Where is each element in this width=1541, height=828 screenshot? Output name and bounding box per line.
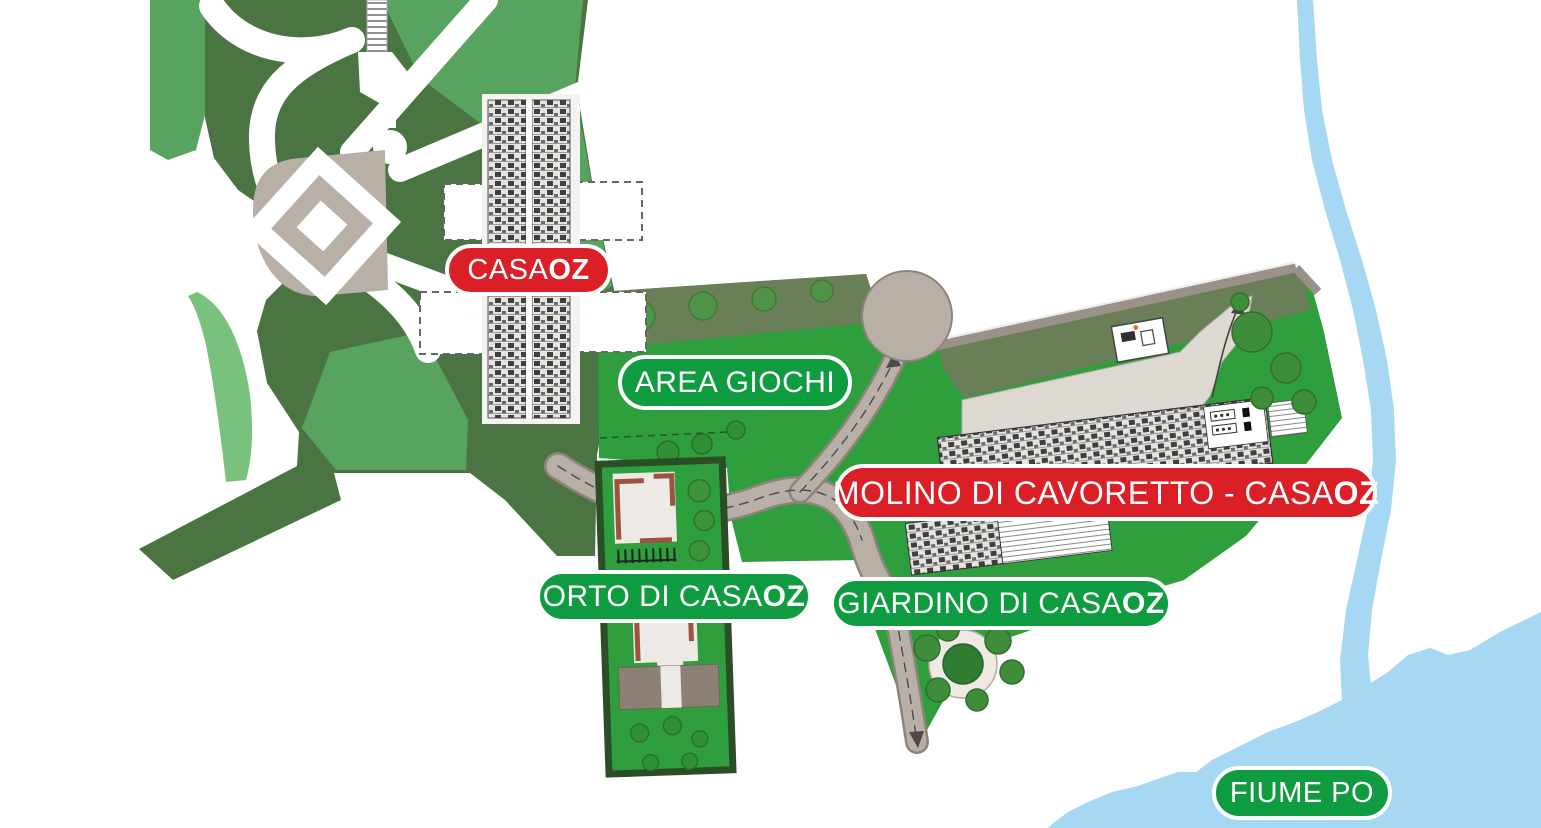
site-map-canvas [0, 0, 1541, 828]
label-orto-bold: OZ [763, 582, 806, 612]
label-fiume-po[interactable]: FIUME PO [1212, 766, 1392, 820]
park-plaza [243, 147, 401, 305]
label-molino-text: MOLINO DI CAVORETTO - CASA [833, 477, 1334, 509]
label-fiume-po-text: FIUME PO [1230, 779, 1374, 808]
park-grass-medium-topleft [150, 0, 205, 160]
label-casaoz[interactable]: CASAOZ [445, 244, 612, 296]
park-grass-light-crescent [188, 292, 252, 482]
label-giardino-bold: OZ [1122, 589, 1165, 619]
gravel-circle-plaza [862, 271, 952, 361]
label-giardino[interactable]: GIARDINO DI CASAOZ [830, 577, 1172, 630]
label-orto-text: ORTO DI CASA [543, 582, 763, 612]
label-molino-bold: OZ [1334, 477, 1379, 509]
park-stairs [367, 0, 387, 54]
label-casaoz-bold: OZ [548, 256, 589, 285]
label-area-giochi[interactable]: AREA GIOCHI [618, 355, 852, 410]
orto-building-path [660, 666, 681, 709]
label-giardino-text: GIARDINO DI CASA [837, 589, 1122, 619]
label-orto[interactable]: ORTO DI CASAOZ [536, 570, 812, 623]
garden-center-lawn [943, 644, 983, 684]
label-casaoz-text: CASA [467, 256, 548, 285]
orto-fence [616, 548, 676, 564]
label-area-giochi-text: AREA GIOCHI [635, 368, 836, 398]
label-molino[interactable]: MOLINO DI CAVORETTO - CASAOZ [835, 464, 1377, 521]
